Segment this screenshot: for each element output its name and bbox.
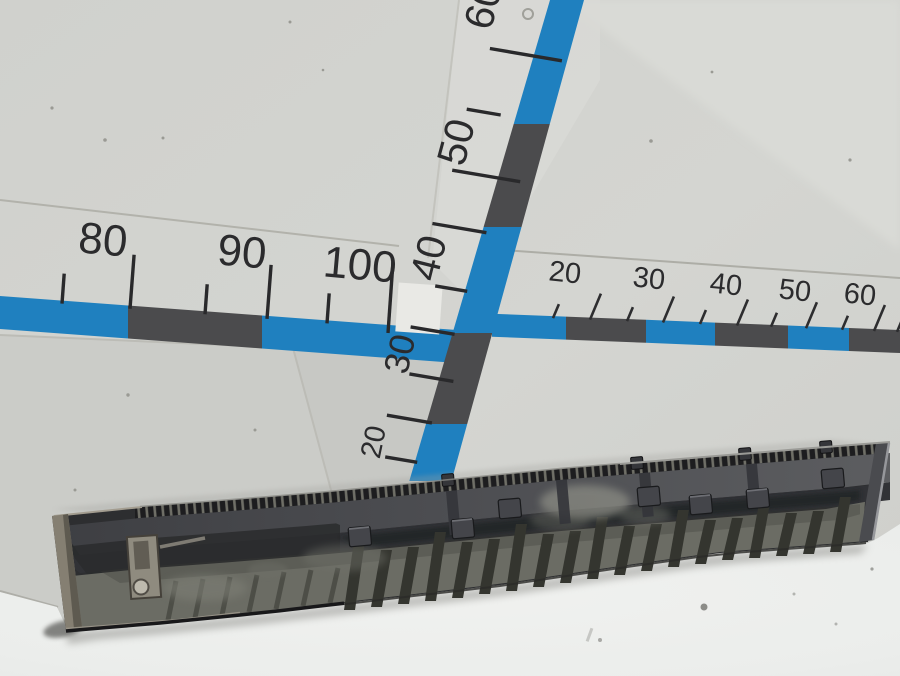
- svg-text:50: 50: [777, 273, 812, 308]
- svg-text:80: 80: [76, 213, 129, 266]
- svg-text:40: 40: [708, 267, 743, 302]
- svg-text:30: 30: [631, 261, 666, 296]
- svg-text:90: 90: [215, 225, 268, 278]
- svg-text:100: 100: [321, 237, 398, 292]
- svg-text:20: 20: [547, 255, 582, 290]
- svg-text:20: 20: [355, 423, 393, 461]
- svg-text:60: 60: [842, 277, 877, 312]
